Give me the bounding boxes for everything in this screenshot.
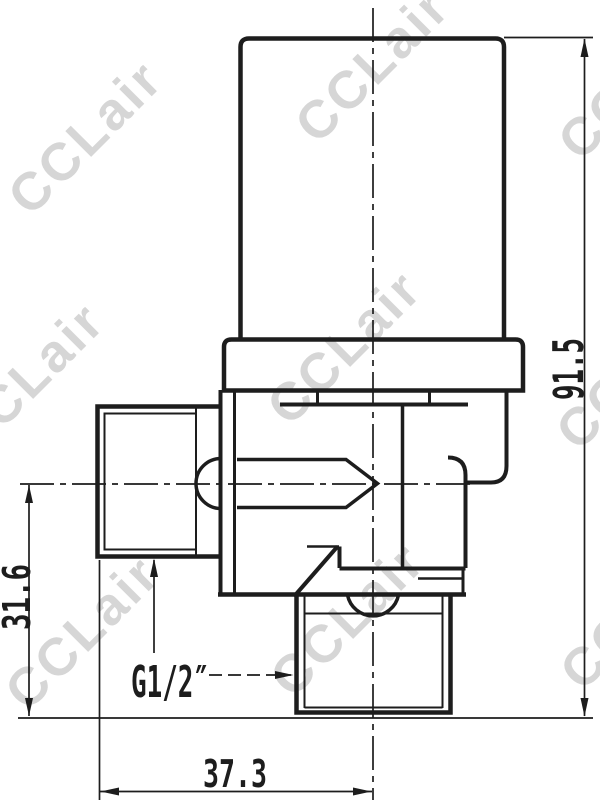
thread-size-label: G1/2″ [131,657,209,708]
technical-drawing-page: CCLair CCLair CCLair CCLair CCLair CCLai… [0,0,600,802]
dim-text-overall-height: 91.5 [544,338,593,400]
dim-text-face-to-axis: 37.3 [203,752,267,796]
dim-text-axis-to-bottom: 31.6 [0,564,39,630]
valve-technical-drawing: CCLair CCLair CCLair CCLair CCLair CCLai… [0,0,600,802]
